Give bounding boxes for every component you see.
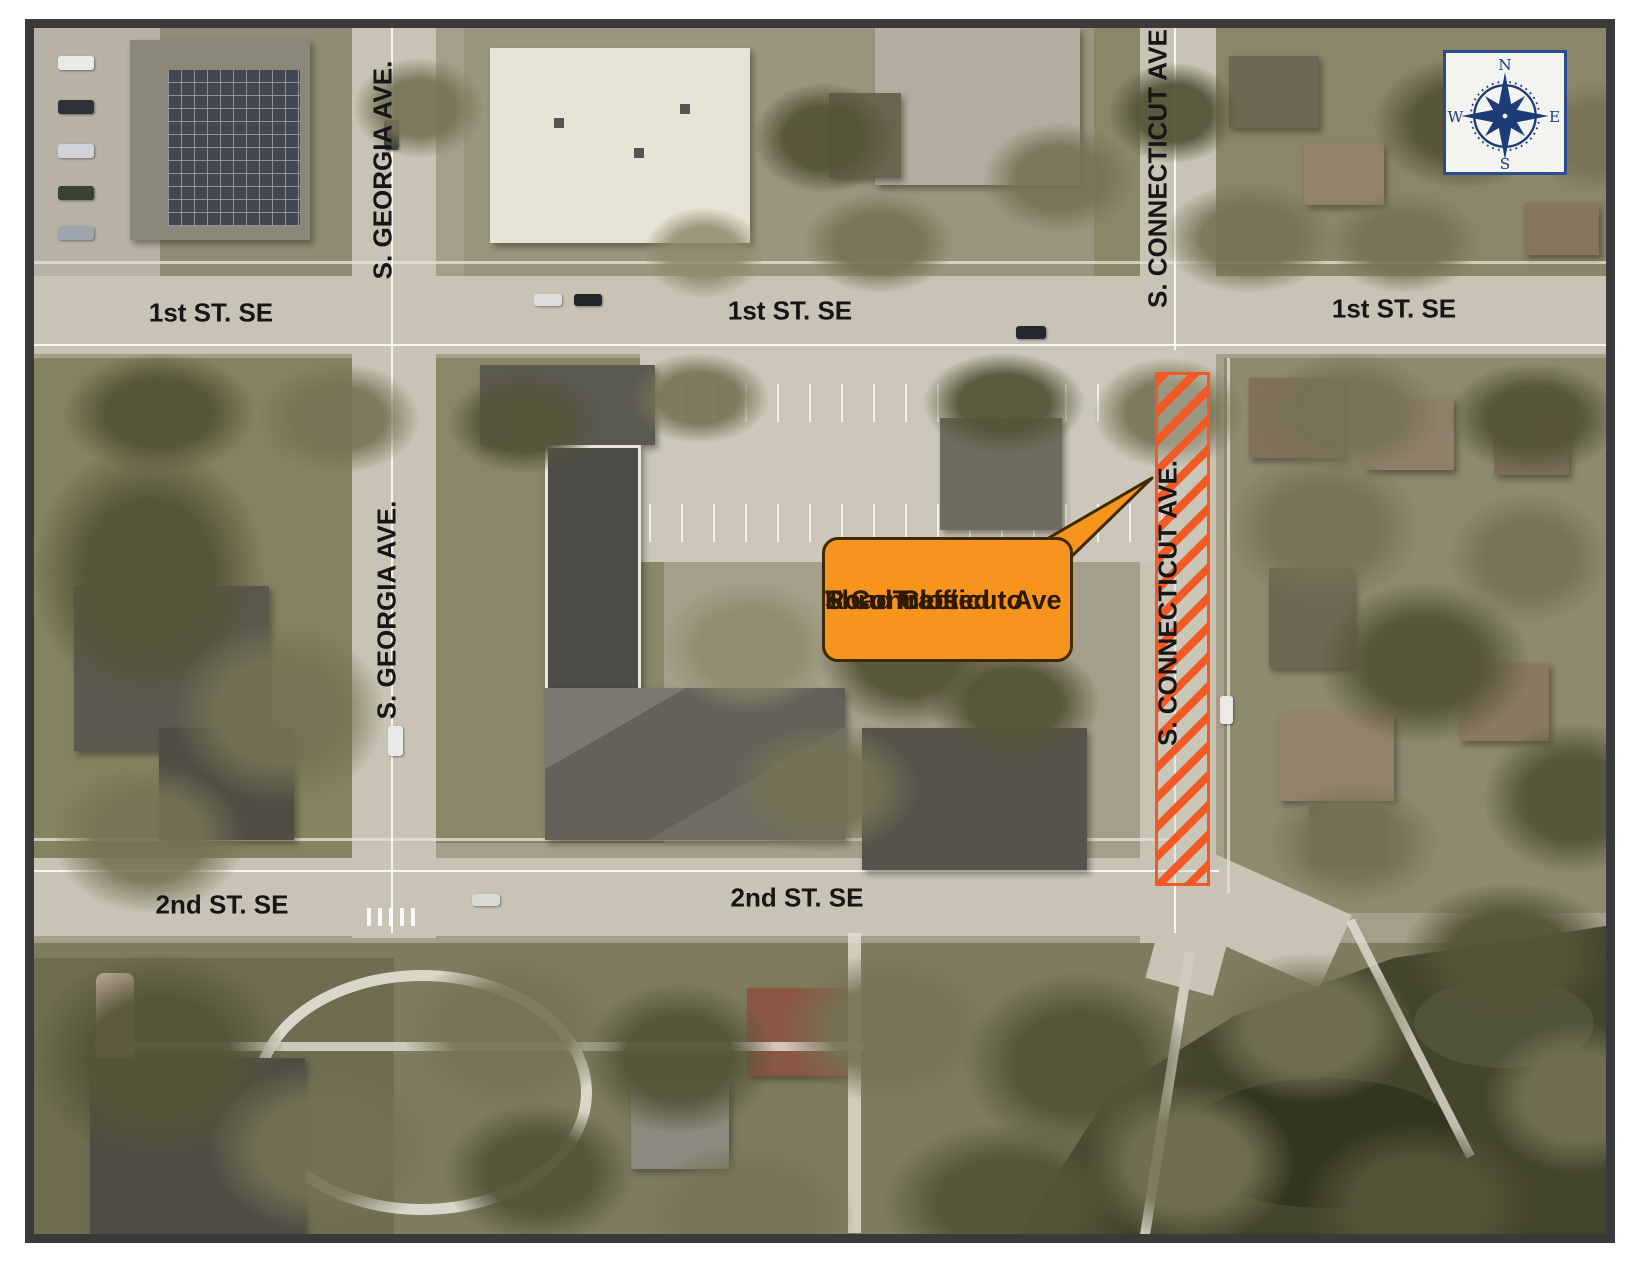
car bbox=[58, 144, 94, 158]
tree-canopy bbox=[444, 1103, 634, 1243]
tree-canopy bbox=[584, 983, 774, 1133]
building-church-long-wing bbox=[545, 445, 641, 693]
car bbox=[534, 294, 562, 306]
road-closed-callout: S Connecticut Ave Road Closed to Thru Tr… bbox=[822, 537, 1073, 662]
compass-hub bbox=[1502, 113, 1508, 119]
tree-canopy bbox=[1109, 63, 1239, 163]
car bbox=[472, 894, 500, 906]
tree-canopy bbox=[984, 123, 1134, 233]
tree-canopy bbox=[1449, 363, 1615, 473]
roof-vent bbox=[554, 118, 564, 128]
car bbox=[58, 56, 94, 70]
compass-letter-s: S bbox=[1500, 155, 1511, 172]
tree-canopy bbox=[209, 1063, 439, 1233]
crosswalk bbox=[367, 908, 421, 926]
solar-panel-roof bbox=[168, 70, 300, 226]
tree-canopy bbox=[1404, 883, 1614, 1023]
compass-letter-w: W bbox=[1448, 108, 1464, 126]
car bbox=[1016, 326, 1046, 339]
street-label-connecticut-top: S. CONNECTICUT AVE. bbox=[1143, 22, 1174, 308]
tree-canopy bbox=[729, 723, 919, 853]
tree-canopy bbox=[924, 353, 1084, 453]
car bbox=[58, 186, 94, 200]
tree-canopy bbox=[174, 623, 384, 803]
car bbox=[58, 100, 94, 114]
tree-canopy bbox=[754, 83, 894, 193]
tree-canopy bbox=[784, 953, 994, 1103]
tree-canopy bbox=[449, 373, 599, 473]
tree-canopy bbox=[1164, 183, 1334, 293]
compass-letter-n: N bbox=[1498, 56, 1511, 74]
compass-letter-e: E bbox=[1549, 108, 1560, 126]
tree-canopy bbox=[1204, 953, 1414, 1103]
car bbox=[1220, 696, 1233, 724]
car bbox=[574, 294, 602, 306]
tree-canopy bbox=[664, 583, 834, 713]
tree-canopy bbox=[1449, 493, 1609, 623]
tree-canopy bbox=[644, 208, 764, 298]
compass-rose-icon: N S E W bbox=[1446, 53, 1564, 172]
map-frame: 1st ST. SE 1st ST. SE 1st ST. SE 2nd ST.… bbox=[25, 19, 1615, 1243]
tree-canopy bbox=[1229, 453, 1419, 603]
house bbox=[1304, 143, 1384, 205]
tree-canopy bbox=[1329, 193, 1479, 293]
tree-canopy bbox=[629, 353, 769, 443]
car bbox=[388, 726, 403, 756]
street-label-georgia-bottom: S. GEORGIA AVE. bbox=[372, 501, 403, 720]
house bbox=[1524, 203, 1599, 255]
street-label-1st-st-right: 1st ST. SE bbox=[1332, 294, 1456, 325]
tree-canopy bbox=[259, 363, 419, 473]
street-label-1st-st-left: 1st ST. SE bbox=[149, 298, 273, 329]
street-label-2nd-st-center: 2nd ST. SE bbox=[731, 883, 864, 914]
street-label-1st-st-center: 1st ST. SE bbox=[728, 296, 852, 327]
roof-vent bbox=[680, 104, 690, 114]
house bbox=[1229, 56, 1319, 128]
callout-line-3: Thru Traffic bbox=[825, 583, 974, 617]
centerline-1st-st bbox=[34, 344, 1606, 346]
roof-vent bbox=[634, 148, 644, 158]
tree-canopy bbox=[404, 953, 614, 1113]
street-label-2nd-st-left: 2nd ST. SE bbox=[156, 890, 289, 921]
car bbox=[58, 226, 94, 240]
tree-canopy bbox=[1269, 783, 1439, 903]
compass-rose: N S E W bbox=[1443, 50, 1567, 175]
street-label-georgia-top: S. GEORGIA AVE. bbox=[368, 61, 399, 280]
tree-canopy bbox=[804, 193, 954, 293]
